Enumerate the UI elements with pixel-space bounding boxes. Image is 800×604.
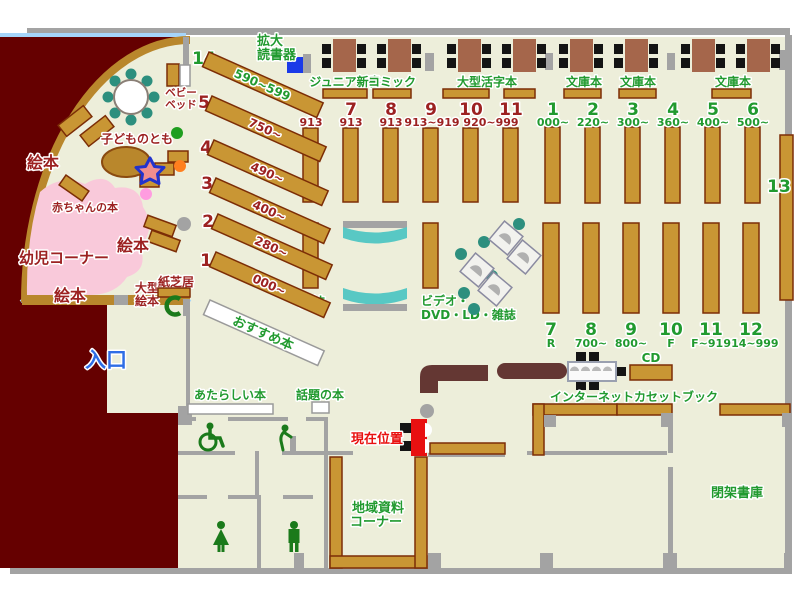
stack-range: 000~	[537, 116, 569, 129]
stack-range: 914~999	[723, 337, 778, 350]
stack-range: 913~919	[404, 116, 459, 129]
stack-shelf	[383, 128, 398, 202]
pillar	[540, 553, 553, 568]
section-bunko-2: 文庫本	[620, 74, 656, 89]
internet-label: インターネット	[550, 390, 634, 404]
shelf	[564, 89, 601, 98]
floor-map-canvas: 拡大 読書器 ジュニア新書 コミック 大型活字本 文庫本 文庫本 文庫本 6 7…	[0, 0, 800, 600]
ehon-label-1: 絵本	[27, 153, 59, 172]
pillar	[661, 413, 673, 427]
stack-range: 913	[380, 116, 403, 129]
wall	[255, 451, 259, 497]
stack-shelf	[743, 223, 759, 313]
magnifier-label-line2: 読書器	[257, 47, 297, 63]
av-shelf	[423, 223, 438, 288]
baby-bed-shelf	[167, 64, 179, 86]
wall	[178, 495, 207, 499]
kids-door	[114, 295, 128, 305]
kodomo-label: 子どものとも	[101, 132, 173, 146]
internet-shelf-leg	[533, 404, 544, 455]
stack-shelf	[585, 127, 600, 203]
new-books-shelf	[188, 404, 273, 414]
shelf	[430, 443, 505, 454]
pillar	[667, 53, 675, 70]
bottom-wall	[10, 568, 792, 574]
orange-dot	[174, 160, 186, 172]
wall	[306, 417, 327, 421]
section-comic: コミック	[368, 75, 416, 89]
shelf	[619, 89, 656, 98]
stack-shelf	[423, 128, 438, 202]
pillar	[304, 55, 311, 73]
stack-shelf	[663, 223, 679, 313]
wall-entry-corridor	[186, 302, 190, 415]
window-line	[0, 33, 186, 37]
wall	[228, 417, 288, 421]
stack-shelf	[583, 223, 599, 313]
stack-range: 913	[300, 116, 323, 129]
right-wall	[785, 35, 792, 574]
stack-range: 360~	[657, 116, 689, 129]
wall	[228, 495, 257, 499]
stack-range: R	[547, 337, 556, 350]
topic-books-label: 話題の本	[296, 387, 344, 402]
ehon-label-3: 絵本	[54, 286, 86, 305]
new-books-label: あたらしい本	[194, 387, 266, 402]
baby-bed-label-line1: ベビー	[165, 86, 197, 99]
stack-range: 700~	[575, 337, 607, 350]
stack-shelf	[543, 223, 559, 313]
kamishibai-label: 紙芝居	[158, 274, 194, 289]
closed-stacks-label: 閉架書庫	[711, 485, 763, 501]
shelf	[373, 89, 411, 98]
shelf	[443, 89, 489, 98]
stack-range: 500~	[737, 116, 769, 129]
pillar	[784, 553, 792, 568]
stack-range: 800~	[615, 337, 647, 350]
shelf	[712, 89, 751, 98]
stack-shelf	[343, 128, 358, 202]
pillar	[428, 553, 441, 568]
stack-shelf	[623, 223, 639, 313]
pillar	[425, 53, 434, 71]
pink-dot	[140, 188, 152, 200]
library-floor-map: 拡大 読書器 ジュニア新書 コミック 大型活字本 文庫本 文庫本 文庫本 6 7…	[0, 0, 800, 600]
outer-wall-bottom-left	[0, 413, 178, 568]
wall	[257, 495, 261, 568]
wall-closed-stacks	[668, 467, 673, 568]
section-bunko-3: 文庫本	[715, 74, 751, 89]
stack-range: 300~	[617, 116, 649, 129]
stack-shelf	[665, 127, 680, 203]
wall	[320, 451, 353, 455]
pillar	[544, 415, 556, 427]
current-location-label: 現在位置	[351, 431, 403, 447]
magnifier-label-line1: 拡大	[257, 33, 283, 49]
oogata-ehon-line1: 大型	[135, 280, 159, 295]
stack-shelf	[463, 128, 478, 202]
pillar	[545, 53, 553, 70]
stack-range: 220~	[577, 116, 609, 129]
stack-range: 920~999	[463, 116, 518, 129]
pillar	[779, 50, 788, 70]
stack-shelf	[703, 223, 719, 313]
shelf	[323, 89, 367, 98]
cd-label: CD	[642, 351, 661, 365]
stack-range: 400~	[697, 116, 729, 129]
stack-range: 913	[340, 116, 363, 129]
stack-range: F	[667, 337, 675, 350]
wall	[183, 299, 190, 316]
shelf	[720, 404, 790, 415]
wall	[294, 553, 304, 568]
topic-books-shelf	[312, 402, 329, 413]
round-pillar	[177, 217, 191, 231]
service-counter	[497, 363, 567, 379]
oogata-ehon-line2: 絵本	[135, 293, 159, 308]
cassette-label: カセットブック	[634, 389, 718, 404]
local-label-line1: 地域資料	[352, 500, 404, 516]
shelf-number: 1	[200, 251, 212, 271]
shelf	[504, 89, 535, 98]
pillar	[782, 413, 792, 427]
wall	[178, 451, 235, 455]
section-large-print: 大型活字本	[457, 74, 517, 89]
wall	[527, 451, 667, 455]
stack-shelf	[705, 127, 720, 203]
wall-toilet-right	[324, 417, 328, 568]
entrance-label: 入口	[85, 348, 127, 372]
stack-number-13: 13	[767, 177, 791, 197]
stack-shelf	[503, 128, 518, 202]
stack-shelf-13	[780, 135, 793, 300]
baby-bed	[180, 65, 190, 86]
internet-shelf	[533, 404, 617, 415]
wall	[283, 495, 313, 499]
stack-shelf	[545, 127, 560, 203]
kids-corner-label: 幼児コーナー	[19, 249, 109, 267]
stack-shelf	[625, 127, 640, 203]
ehon-label-2: 絵本	[117, 236, 149, 255]
baby-bed-label-line2: ベッド	[165, 99, 197, 111]
cd-shelf	[630, 365, 672, 380]
section-bunko-1: 文庫本	[566, 74, 602, 89]
baby-books-label: 赤ちゃんの本	[52, 200, 118, 214]
wall	[186, 417, 196, 421]
pillar	[183, 37, 189, 67]
stack-shelf	[745, 127, 760, 203]
local-label-line2: コーナー	[350, 515, 402, 530]
